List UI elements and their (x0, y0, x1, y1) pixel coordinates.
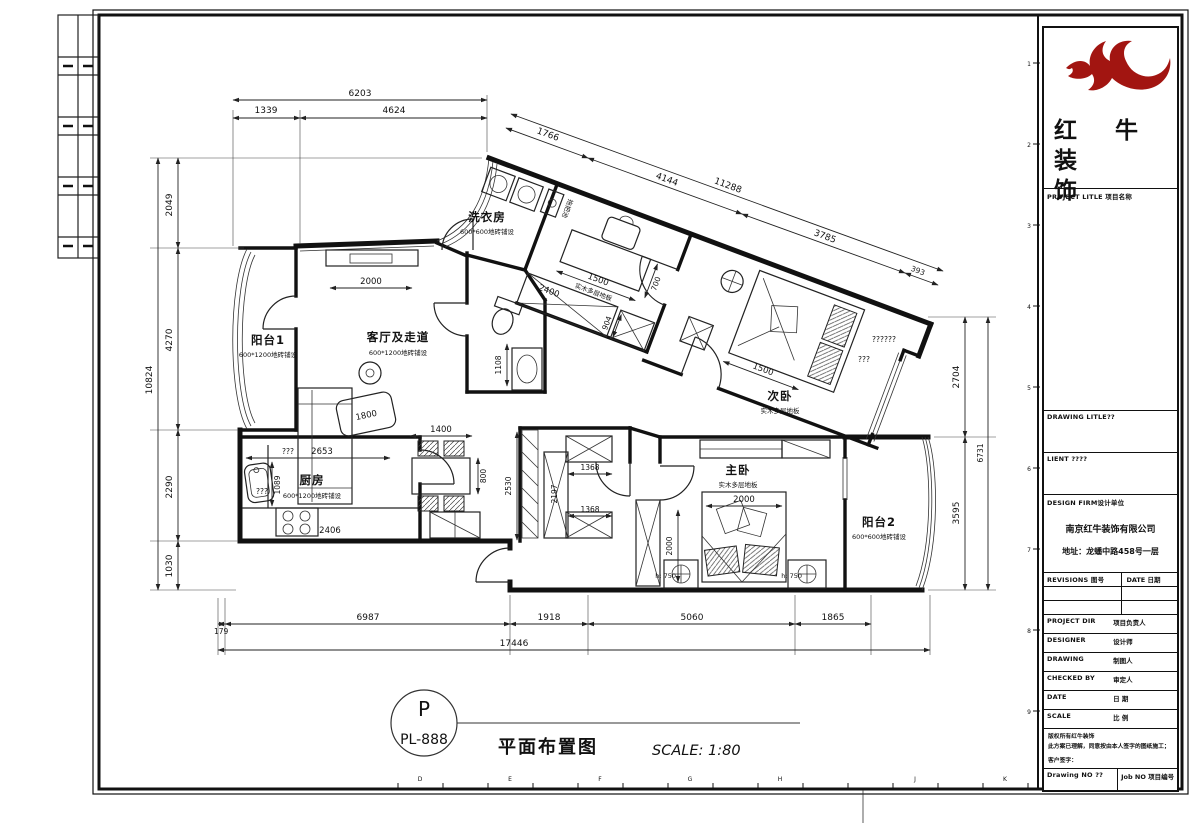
dim-closet-inner: 2197 (550, 484, 559, 503)
dim-dining-width: 1400 (430, 425, 452, 435)
room-label-balcony2: 阳台2 (862, 515, 896, 529)
project-title-label: PROJECT LITLE 项目名称 (1044, 189, 1177, 203)
row-date: DATE 日 期 (1044, 690, 1177, 709)
border-dimensions: 6203 1339 4624 11288 1766 4144 3785 393 … (145, 89, 996, 655)
design-firm-label: DESIGN FIRM设计单位 (1044, 495, 1177, 509)
dim-living-width: 2000 (360, 277, 382, 287)
ruler-number: 5 (1027, 385, 1031, 392)
dim-study-shaft: 904 (600, 315, 614, 332)
dim-top-a: 1339 (255, 106, 278, 116)
project-title-section: PROJECT LITLE 项目名称 (1044, 188, 1177, 410)
client-label: LIENT ???? (1044, 453, 1177, 465)
dim-nightstand-b: h: 750 (781, 572, 802, 580)
drawing-title-label: DRAWING LITLE?? (1044, 411, 1177, 423)
annotation-q6: ?????? (872, 335, 896, 344)
room-sub-kitchen: 600*1200地砖铺设 (283, 491, 342, 500)
dim-right-overall: 6731 (976, 443, 985, 462)
room-sub-laundry: 600*600地砖铺设 (460, 227, 515, 236)
row-drawing: DRAWING 制图人 (1044, 652, 1177, 671)
dim-left-d: 1030 (165, 554, 175, 577)
border-ruler-bottom: D E F G H J K (398, 776, 1028, 823)
drawing-sheet: D E F G H J K 1 2 3 4 5 6 7 8 9 (0, 0, 1200, 824)
checked-by-label: CHECKED BY (1044, 672, 1177, 684)
ruler-number: 4 (1027, 304, 1031, 311)
dim-bottom-b: 6987 (357, 613, 380, 623)
dim-bottom-e: 1865 (822, 613, 845, 623)
room-sub-balcony2: 600*600地砖铺设 (852, 532, 907, 541)
room-label-laundry: 洗衣房 (468, 210, 506, 224)
room-label-balcony1: 阳台1 (251, 333, 285, 347)
project-dir-cn: 项目负责人 (1113, 615, 1146, 629)
dim-study-desk-depth: 700 (649, 275, 663, 292)
annotation-kitchen-q2: ??? (282, 447, 294, 456)
room-label-living: 客厅及走道 (366, 330, 430, 344)
furniture: 1800 (242, 250, 830, 588)
ruler-number: 2 (1027, 142, 1031, 149)
revisions-header: REVISIONS 图号 DATE 日期 (1044, 572, 1177, 586)
row-scale: SCALE 比 例 (1044, 709, 1177, 728)
scale-cn: 比 例 (1113, 710, 1128, 724)
ruler-number: 7 (1027, 547, 1031, 554)
drawing-by-cn: 制图人 (1113, 653, 1133, 667)
dim-nightstand-a: h: 750 (655, 572, 676, 580)
ruler-letter: J (913, 776, 916, 783)
ruler-number: 8 (1027, 628, 1031, 635)
drawing-title: 平面布置图 (498, 736, 598, 758)
drawing-scale: SCALE: 1:80 (652, 743, 741, 759)
room-label-kitchen: 厨房 (300, 473, 325, 487)
row-designer: DESIGNER 设计师 (1044, 633, 1177, 652)
notes-section: 版权所有红牛装饰 此方案已理解，同意按由本人签字的图纸施工； 客户签字： (1044, 728, 1177, 768)
annotation-q3: ??? (858, 355, 870, 364)
ruler-letter: H (778, 776, 783, 783)
dim-bed-width: 2000 (733, 495, 755, 505)
ruler-number: 6 (1027, 466, 1031, 473)
logo-section: 红 牛 装 饰 (1044, 28, 1177, 188)
firm-address: 地址：龙蟠中路458号一层 (1044, 546, 1177, 557)
drawing-title-bar: P PL-888 平面布置图 SCALE: 1:80 (391, 690, 800, 759)
dim-sofa: 1800 (355, 409, 378, 423)
date-cn: 日 期 (1113, 691, 1128, 705)
drawing-title-section: DRAWING LITLE?? (1044, 410, 1177, 452)
scale-label: SCALE (1044, 710, 1177, 722)
room-label-master: 主卧 (726, 463, 751, 477)
ruler-letter: K (1003, 776, 1008, 783)
firm-name: 南京红牛装饰有限公司 (1044, 522, 1177, 535)
date-label: DATE (1044, 691, 1177, 703)
dim-bottom-overall: 17446 (500, 639, 529, 649)
dim-kitchen-depth: 1089 (273, 475, 282, 494)
floor-plan-svg: D E F G H J K 1 2 3 4 5 6 7 8 9 (0, 0, 1200, 824)
sheet-border (93, 10, 1188, 794)
dim-right-b: 3595 (952, 502, 962, 525)
revision-date-label: DATE 日期 (1126, 572, 1160, 586)
dim-left-overall: 10824 (145, 365, 155, 394)
walls-rotated-wing: 拖把池 1500 实木多层地板 700 2400 904 1500 (442, 158, 931, 450)
title-tag-number: PL-888 (400, 732, 448, 748)
dim-bottom-d: 5060 (681, 613, 704, 623)
logo-text-line1: 红 牛 装 (1044, 116, 1177, 176)
room-sub-balcony1: 600*1200地砖铺设 (239, 350, 298, 359)
ruler-letter: F (598, 776, 602, 783)
dim-left-a: 2049 (165, 193, 175, 216)
design-firm-section: DESIGN FIRM设计单位 南京红牛装饰有限公司 地址：龙蟠中路458号一层 (1044, 494, 1177, 572)
room-sub-master: 实木多层地板 (719, 480, 759, 489)
dim-diag-a: 1766 (535, 126, 560, 144)
dim-counter: 2406 (319, 526, 341, 536)
revision-row (1044, 600, 1177, 614)
dim-kitchen-width: 2653 (311, 447, 333, 457)
designer-label: DESIGNER (1044, 634, 1177, 646)
dim-closet-wb: 1368 (580, 505, 599, 514)
redniu-logo-icon (1044, 32, 1177, 116)
dim-top-overall: 6203 (349, 89, 372, 99)
revision-strip (58, 15, 98, 258)
project-dir-label: PROJECT DIR (1044, 615, 1177, 627)
dim-bath: 1108 (494, 355, 503, 374)
dim-left-b: 4270 (165, 328, 175, 351)
room-labels: 阳台1 600*1200地砖铺设 客厅及走道 600*1200地砖铺设 厨房 6… (239, 210, 907, 541)
room-sub-bedroom2: 实木多层地板 (761, 406, 801, 415)
note-line2: 此方案已理解，同意按由本人签字的图纸施工； (1048, 743, 1173, 753)
ruler-letter: E (508, 776, 512, 783)
title-block: 红 牛 装 饰 PROJECT LITLE 项目名称 DRAWING LITLE… (1042, 26, 1179, 792)
ruler-number: 9 (1027, 709, 1031, 716)
drawing-by-label: DRAWING (1044, 653, 1177, 665)
note-line3: 客户签字： (1048, 757, 1173, 767)
dim-closet-wa: 1368 (580, 463, 599, 472)
ruler-number: 1 (1027, 61, 1031, 68)
title-tag-letter: P (418, 697, 430, 721)
annotation-kitchen-q1: ??? (256, 487, 268, 496)
job-no-label: Job NO 项目编号 (1121, 769, 1174, 783)
dim-dining-depth: 800 (479, 469, 488, 484)
dim-bed-length: 2000 (665, 536, 674, 555)
dim-top-b: 4624 (383, 106, 406, 116)
row-project-dir: PROJECT DIR 项目负责人 (1044, 614, 1177, 633)
ruler-letter: D (418, 776, 423, 783)
dim-bottom-c: 1918 (538, 613, 561, 623)
note-line1: 版权所有红牛装饰 (1048, 733, 1173, 743)
ruler-number: 3 (1027, 223, 1031, 230)
checked-by-cn: 审定人 (1113, 672, 1133, 686)
revision-row (1044, 586, 1177, 600)
row-checked-by: CHECKED BY 审定人 (1044, 671, 1177, 690)
room-sub-living: 600*1200地砖铺设 (369, 348, 428, 357)
ruler-letter: G (688, 776, 693, 783)
dim-study-closet: 2400 (537, 283, 561, 300)
designer-cn: 设计师 (1113, 634, 1133, 648)
dim-bottom-a: 179 (214, 627, 229, 636)
dim-left-c: 2290 (165, 475, 175, 498)
client-section: LIENT ???? (1044, 452, 1177, 494)
room-label-bedroom2: 次卧 (768, 389, 793, 403)
mop-sink-label: 拖把池 (560, 198, 575, 220)
dim-closet-height: 2530 (504, 476, 513, 495)
drawing-no-section: Drawing NO ?? Job NO 项目编号 (1044, 768, 1177, 792)
dim-right-a: 2704 (952, 365, 962, 388)
